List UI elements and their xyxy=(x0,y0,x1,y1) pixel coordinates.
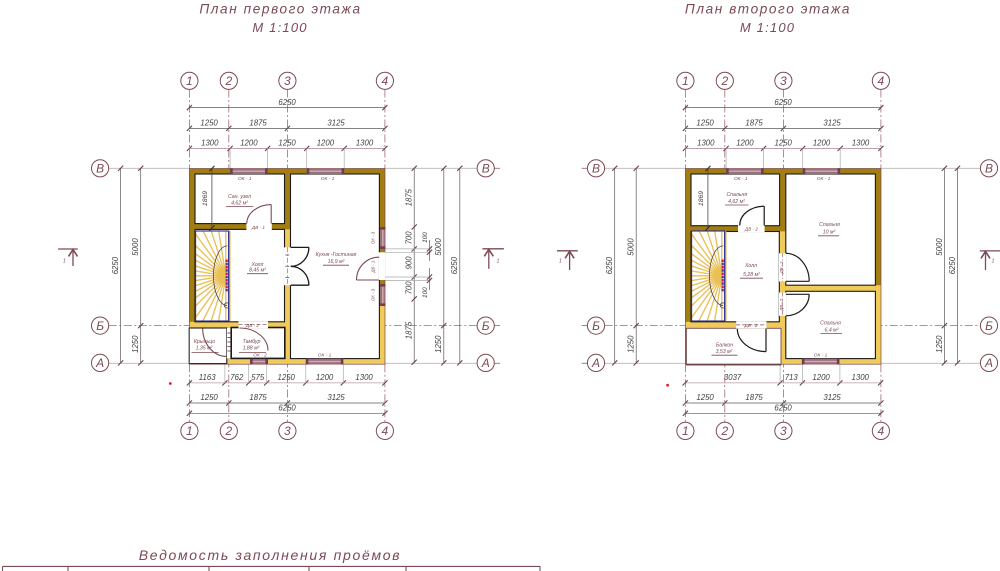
svg-text:ОК - 3: ОК - 3 xyxy=(371,231,376,244)
svg-text:6250: 6250 xyxy=(774,98,792,107)
svg-text:1875: 1875 xyxy=(405,188,414,206)
svg-text:1200: 1200 xyxy=(736,139,754,148)
svg-text:1875: 1875 xyxy=(249,393,267,402)
svg-text:2: 2 xyxy=(224,424,232,438)
svg-text:ОК - 1: ОК - 1 xyxy=(734,176,748,182)
svg-text:ОК - 1: ОК - 1 xyxy=(321,176,335,182)
svg-text:1250: 1250 xyxy=(696,393,714,402)
svg-text:1250: 1250 xyxy=(627,335,636,353)
svg-text:В: В xyxy=(592,162,600,176)
svg-text:3037: 3037 xyxy=(724,373,742,382)
svg-text:2: 2 xyxy=(720,424,728,438)
svg-text:6250: 6250 xyxy=(948,256,957,274)
svg-text:Спальня: Спальня xyxy=(726,192,747,198)
svg-text:1: 1 xyxy=(992,259,995,265)
svg-text:1: 1 xyxy=(497,259,500,265)
svg-text:ОК - 2: ОК - 2 xyxy=(253,353,267,359)
svg-text:План первого этажа: План первого этажа xyxy=(199,2,361,17)
svg-text:1250: 1250 xyxy=(935,335,944,353)
svg-text:1250: 1250 xyxy=(200,119,218,128)
svg-text:В: В xyxy=(482,162,490,176)
svg-text:1875: 1875 xyxy=(745,119,763,128)
svg-text:3125: 3125 xyxy=(823,119,841,128)
svg-text:700: 700 xyxy=(405,281,414,295)
svg-text:3,53 м²: 3,53 м² xyxy=(716,349,733,355)
svg-text:1300: 1300 xyxy=(852,139,870,148)
svg-text:1,35 м²: 1,35 м² xyxy=(196,346,213,352)
svg-text:1: 1 xyxy=(186,74,193,88)
svg-text:4: 4 xyxy=(382,74,389,88)
svg-text:1250: 1250 xyxy=(775,139,793,148)
svg-text:5000: 5000 xyxy=(131,238,140,256)
svg-text:ДВ - 2: ДВ - 2 xyxy=(744,323,758,328)
svg-text:700: 700 xyxy=(405,231,414,245)
svg-text:713: 713 xyxy=(785,373,799,382)
svg-text:1250: 1250 xyxy=(131,335,140,353)
svg-text:1875: 1875 xyxy=(405,321,414,339)
svg-text:1: 1 xyxy=(63,259,66,265)
svg-text:5,28 м²: 5,28 м² xyxy=(743,272,760,278)
svg-text:3: 3 xyxy=(780,74,787,88)
svg-text:Крыльцо: Крыльцо xyxy=(194,339,215,345)
svg-text:3: 3 xyxy=(780,424,787,438)
svg-text:Б: Б xyxy=(592,319,600,333)
svg-text:1200: 1200 xyxy=(812,373,830,382)
svg-text:3125: 3125 xyxy=(327,119,345,128)
svg-text:575: 575 xyxy=(251,373,265,382)
svg-text:4,62 м²: 4,62 м² xyxy=(231,201,248,207)
svg-text:1300: 1300 xyxy=(852,373,870,382)
svg-text:Б: Б xyxy=(96,319,104,333)
svg-text:ДВ - 2: ДВ - 2 xyxy=(779,298,784,311)
svg-text:1300: 1300 xyxy=(697,139,715,148)
svg-text:План второго этажа: План второго этажа xyxy=(685,2,851,17)
svg-text:Б: Б xyxy=(985,319,993,333)
svg-text:Сан. узел: Сан. узел xyxy=(228,194,251,200)
svg-text:3125: 3125 xyxy=(327,393,345,402)
svg-text:М 1:100: М 1:100 xyxy=(740,20,795,35)
svg-text:4: 4 xyxy=(878,74,885,88)
svg-text:762: 762 xyxy=(230,373,244,382)
svg-text:Спальня: Спальня xyxy=(819,222,840,228)
svg-text:1200: 1200 xyxy=(813,139,831,148)
svg-text:2: 2 xyxy=(720,74,728,88)
svg-text:2: 2 xyxy=(224,74,232,88)
svg-text:ОК - 3: ОК - 3 xyxy=(371,288,376,301)
svg-text:10 м²: 10 м² xyxy=(823,230,836,236)
svg-text:ДВ - 1: ДВ - 1 xyxy=(251,225,265,230)
svg-text:4: 4 xyxy=(382,424,389,438)
svg-text:1200: 1200 xyxy=(316,373,334,382)
svg-text:Ведомость заполнения проёмов: Ведомость заполнения проёмов xyxy=(139,547,402,563)
svg-text:4,62 м²: 4,62 м² xyxy=(728,199,745,205)
svg-text:1250: 1250 xyxy=(278,373,296,382)
svg-text:16,9 м²: 16,9 м² xyxy=(328,259,345,265)
svg-text:3: 3 xyxy=(284,74,291,88)
svg-text:6250: 6250 xyxy=(278,98,296,107)
svg-text:ДВ - 2: ДВ - 2 xyxy=(779,261,784,274)
svg-text:6250: 6250 xyxy=(605,256,614,274)
svg-text:1: 1 xyxy=(559,259,562,265)
svg-text:1163: 1163 xyxy=(199,373,216,382)
svg-text:1300: 1300 xyxy=(355,373,373,382)
svg-text:ОК - 1: ОК - 1 xyxy=(238,176,252,182)
svg-text:5000: 5000 xyxy=(434,238,443,256)
svg-text:1250: 1250 xyxy=(434,335,443,353)
svg-text:6250: 6250 xyxy=(111,256,120,274)
svg-text:1869: 1869 xyxy=(202,191,209,206)
svg-text:6250: 6250 xyxy=(278,404,296,413)
svg-text:6250: 6250 xyxy=(774,404,792,413)
svg-text:1875: 1875 xyxy=(249,119,267,128)
svg-text:Б: Б xyxy=(482,319,490,333)
svg-text:А: А xyxy=(984,356,993,370)
svg-text:1: 1 xyxy=(682,424,689,438)
svg-text:1250: 1250 xyxy=(200,393,218,402)
svg-text:Балкон: Балкон xyxy=(716,343,733,349)
svg-text:3125: 3125 xyxy=(823,393,841,402)
svg-text:В: В xyxy=(985,162,993,176)
svg-text:1869: 1869 xyxy=(698,191,705,206)
svg-text:А: А xyxy=(95,356,104,370)
svg-text:А: А xyxy=(481,356,490,370)
svg-text:4: 4 xyxy=(878,424,885,438)
svg-text:100: 100 xyxy=(422,287,429,298)
svg-text:1875: 1875 xyxy=(745,393,763,402)
svg-text:1250: 1250 xyxy=(278,139,296,148)
svg-text:6250: 6250 xyxy=(450,256,459,274)
svg-text:1: 1 xyxy=(682,74,689,88)
svg-text:1200: 1200 xyxy=(240,139,258,148)
svg-text:1300: 1300 xyxy=(201,139,219,148)
svg-text:ОК - 1: ОК - 1 xyxy=(318,353,332,359)
svg-text:ДВ - 2: ДВ - 2 xyxy=(245,323,259,328)
svg-text:1200: 1200 xyxy=(317,139,335,148)
svg-text:А: А xyxy=(591,356,600,370)
svg-text:900: 900 xyxy=(405,256,414,270)
svg-text:Спальня: Спальня xyxy=(820,320,841,326)
svg-text:5000: 5000 xyxy=(935,238,944,256)
svg-text:1300: 1300 xyxy=(356,139,374,148)
svg-text:1: 1 xyxy=(186,424,193,438)
svg-text:М 1:100: М 1:100 xyxy=(252,20,307,35)
svg-text:5000: 5000 xyxy=(627,238,636,256)
svg-text:Холл: Холл xyxy=(744,263,757,269)
svg-text:Кухня -Гостиная: Кухня -Гостиная xyxy=(316,252,357,258)
svg-text:6,4 м²: 6,4 м² xyxy=(825,327,839,333)
svg-text:1,88 м²: 1,88 м² xyxy=(243,346,260,352)
svg-text:Д6 - 1: Д6 - 1 xyxy=(371,260,376,273)
svg-text:ОК - 1: ОК - 1 xyxy=(814,353,828,359)
svg-text:8,45 м²: 8,45 м² xyxy=(249,268,266,274)
svg-text:ОК - 1: ОК - 1 xyxy=(817,176,831,182)
svg-text:100: 100 xyxy=(422,232,429,243)
svg-text:ДВ - 2: ДВ - 2 xyxy=(744,227,758,232)
svg-text:Тамбур: Тамбур xyxy=(243,339,261,345)
svg-text:1250: 1250 xyxy=(696,119,714,128)
svg-text:В: В xyxy=(96,162,104,176)
svg-text:3: 3 xyxy=(284,424,291,438)
